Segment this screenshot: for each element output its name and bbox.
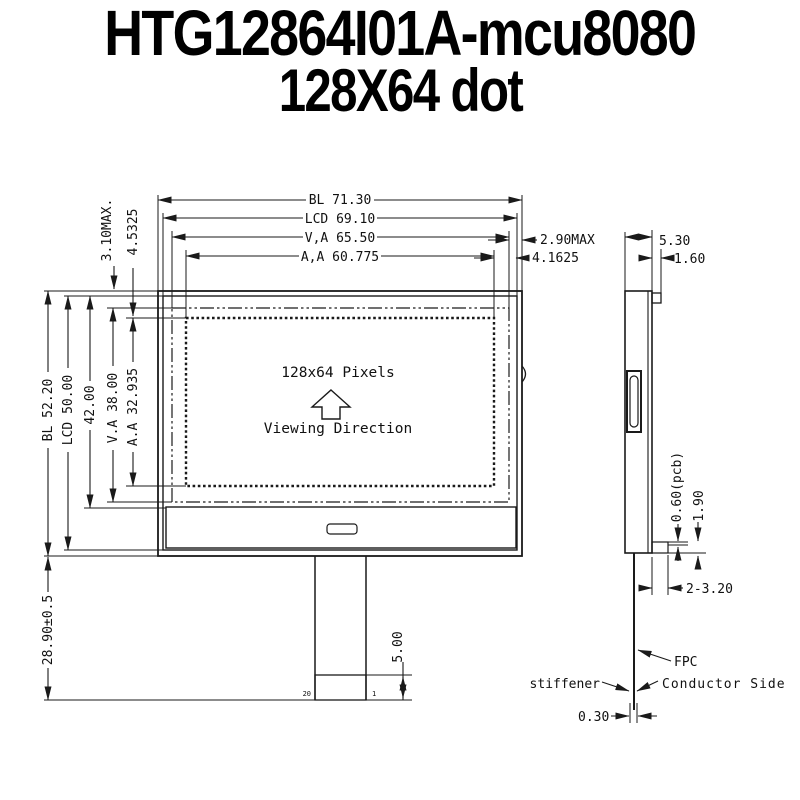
side-view: 5.30 1.60 0.60(pcb) 1.90 2-3.20 FPC stif… xyxy=(530,230,786,725)
side-pcb-step xyxy=(652,542,668,553)
dim-tail-length: 28.90±0.5 xyxy=(41,595,56,665)
dim-fpc-thickness: 0.30 xyxy=(578,710,609,725)
dim-width-va: V,A 65.50 xyxy=(305,231,375,246)
dim-pcb-thickness: 0.60(pcb) xyxy=(670,452,685,522)
left-height-dimensions: BL 52.20 LCD 50.00 42.00 V.A 38.00 A.A 3… xyxy=(41,291,406,700)
fpc-leader xyxy=(638,650,671,661)
dim-side-tab: 1.60 xyxy=(674,252,705,267)
front-view: 128x64 Pixels Viewing Direction 20 1 xyxy=(158,291,526,700)
dim-height-aa: A.A 32.935 xyxy=(126,368,141,446)
pin-20-label: 20 xyxy=(303,690,311,698)
side-connector-outline xyxy=(627,371,641,432)
viewing-direction-arrow-icon xyxy=(312,390,350,419)
viewing-direction-label: Viewing Direction xyxy=(264,421,412,437)
pin-1-label: 1 xyxy=(372,690,376,698)
viewing-area-outline xyxy=(172,308,509,502)
dim-contact-length: 5.00 xyxy=(391,631,406,662)
dim-gap-right-aa: 4.1625 xyxy=(532,251,579,266)
dim-gap-top-va: 3.10MAX. xyxy=(100,199,115,262)
side-bezel-tab xyxy=(652,293,661,303)
side-extension-lines xyxy=(625,230,706,595)
fpc-label: FPC xyxy=(674,655,697,670)
dim-height-mid: 42.00 xyxy=(83,385,98,424)
side-connector-capsule xyxy=(630,376,638,427)
dim-side-thickness: 5.30 xyxy=(659,234,690,249)
stiffener-label: stiffener xyxy=(530,677,601,692)
dimension-drawing: 128x64 Pixels Viewing Direction 20 1 xyxy=(0,0,800,800)
dim-height-bl: BL 52.20 xyxy=(41,379,56,442)
stiffener-leader xyxy=(602,682,629,691)
dim-gap-top-aa: 4.5325 xyxy=(126,209,141,256)
dim-height-lcd: LCD 50.00 xyxy=(61,375,76,445)
dim-height-va: V.A 38.00 xyxy=(106,373,121,443)
conductor-side-label: Conductor Side xyxy=(662,677,786,692)
datasheet-page: { "title": { "line1": "HTG12864I01A-mcu8… xyxy=(0,0,800,800)
dim-width-lcd: LCD 69.10 xyxy=(305,212,375,227)
dim-pcb-gap: 1.90 xyxy=(692,490,707,521)
extension-lines xyxy=(44,195,522,700)
dim-width-aa: A,A 60.775 xyxy=(301,250,379,265)
conductor-side-leader xyxy=(637,681,658,691)
bezel-hatch-strip xyxy=(166,507,516,548)
active-area-outline xyxy=(186,318,494,486)
bezel-slot xyxy=(327,524,357,534)
top-width-dimensions: BL 71.30 LCD 69.10 V,A 65.50 A,A 60.775 … xyxy=(100,193,595,316)
dim-width-bl: BL 71.30 xyxy=(309,193,372,208)
dim-gap-right-va: 2.90MAX xyxy=(540,233,595,248)
pixels-label: 128x64 Pixels xyxy=(281,365,395,381)
dim-hole: 2-3.20 xyxy=(686,582,733,597)
fpc-contact-pad xyxy=(315,675,366,700)
